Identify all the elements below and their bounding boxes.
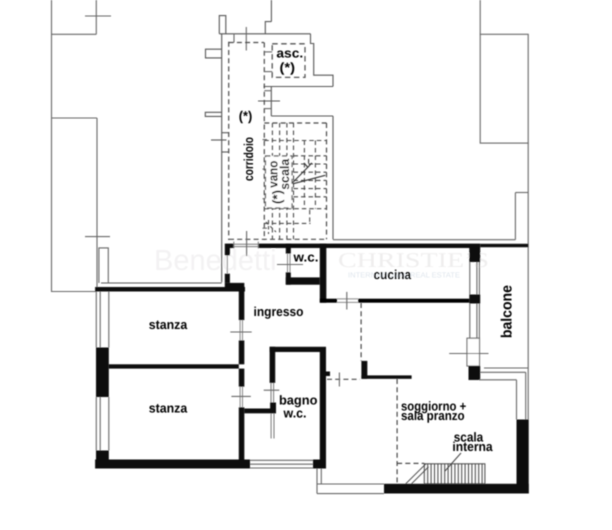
svg-text:stanza: stanza <box>149 317 188 332</box>
svg-text:asc.: asc. <box>276 46 303 61</box>
svg-text:(*): (*) <box>280 60 296 75</box>
svg-text:w.c.: w.c. <box>293 249 319 264</box>
svg-text:ingresso: ingresso <box>254 304 304 319</box>
svg-text:scala: scala <box>277 158 292 190</box>
svg-text:(*): (*) <box>239 109 253 124</box>
svg-text:balcone: balcone <box>499 285 516 338</box>
svg-text:w.c.: w.c. <box>283 406 307 421</box>
svg-text:cucina: cucina <box>374 267 412 282</box>
svg-text:Benedetti: Benedetti <box>154 245 277 277</box>
svg-text:corridoio: corridoio <box>241 137 256 181</box>
svg-text:stanza: stanza <box>149 401 188 416</box>
svg-text:(*): (*) <box>270 190 285 204</box>
svg-text:interna: interna <box>452 439 493 454</box>
svg-text:sala pranzo: sala pranzo <box>401 408 465 423</box>
svg-text:CHRISTIE’S: CHRISTIE’S <box>338 248 489 272</box>
